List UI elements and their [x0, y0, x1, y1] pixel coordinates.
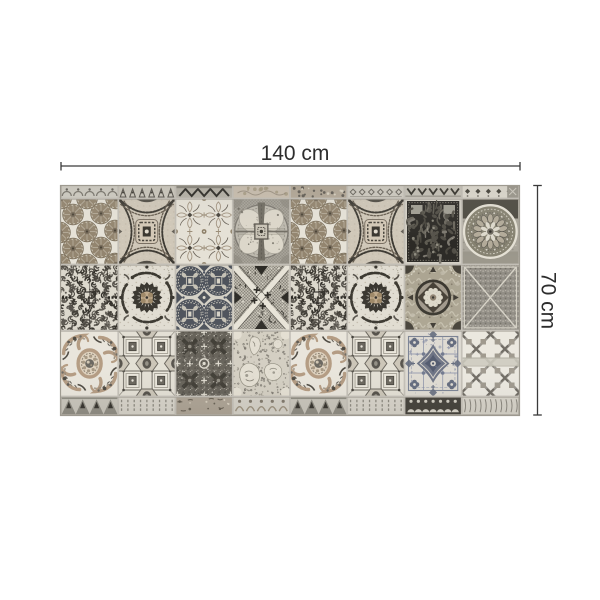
svg-text:140 cm: 140 cm	[261, 142, 330, 165]
svg-text:70 cm: 70 cm	[537, 272, 560, 329]
